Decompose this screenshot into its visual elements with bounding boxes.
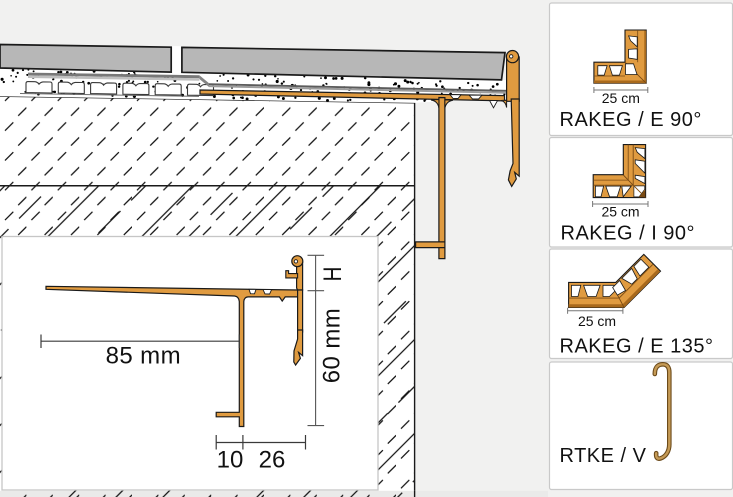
- svg-text:26: 26: [259, 447, 286, 474]
- svg-text:10: 10: [217, 447, 244, 474]
- svg-text:60 mm: 60 mm: [319, 308, 346, 383]
- svg-text:H: H: [319, 267, 347, 282]
- svg-text:25 cm: 25 cm: [601, 204, 639, 220]
- svg-text:85 mm: 85 mm: [106, 342, 181, 369]
- svg-text:RAKEG / E 90°: RAKEG / E 90°: [560, 109, 702, 131]
- svg-text:RAKEG / I 90°: RAKEG / I 90°: [561, 223, 696, 245]
- svg-text:RAKEG / E 135°: RAKEG / E 135°: [560, 336, 714, 358]
- svg-text:25 cm: 25 cm: [602, 90, 640, 106]
- svg-text:RTKE / V: RTKE / V: [560, 445, 647, 467]
- svg-text:25 cm: 25 cm: [578, 313, 616, 329]
